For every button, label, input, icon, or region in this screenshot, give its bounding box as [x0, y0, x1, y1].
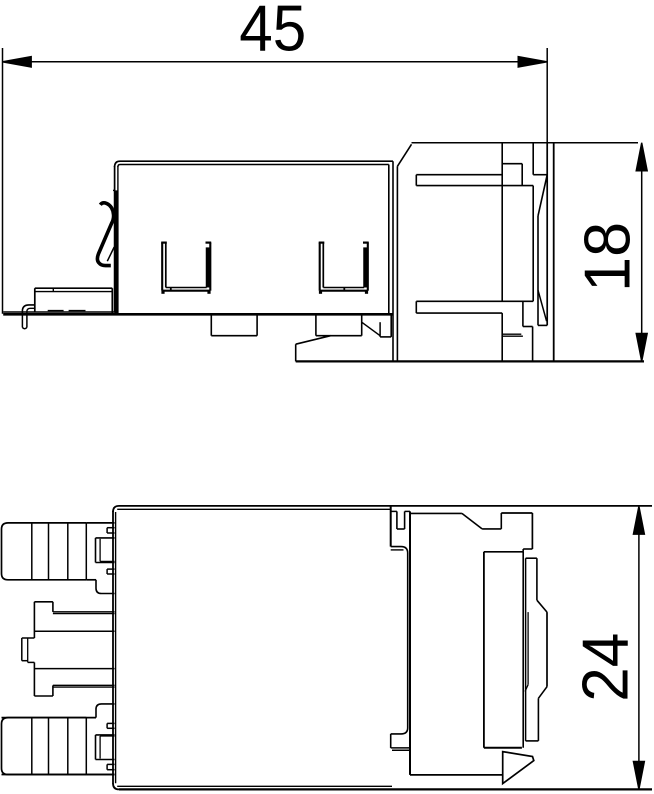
svg-text:45: 45 [239, 0, 306, 65]
svg-text:18: 18 [572, 222, 644, 292]
svg-text:24: 24 [569, 633, 641, 702]
